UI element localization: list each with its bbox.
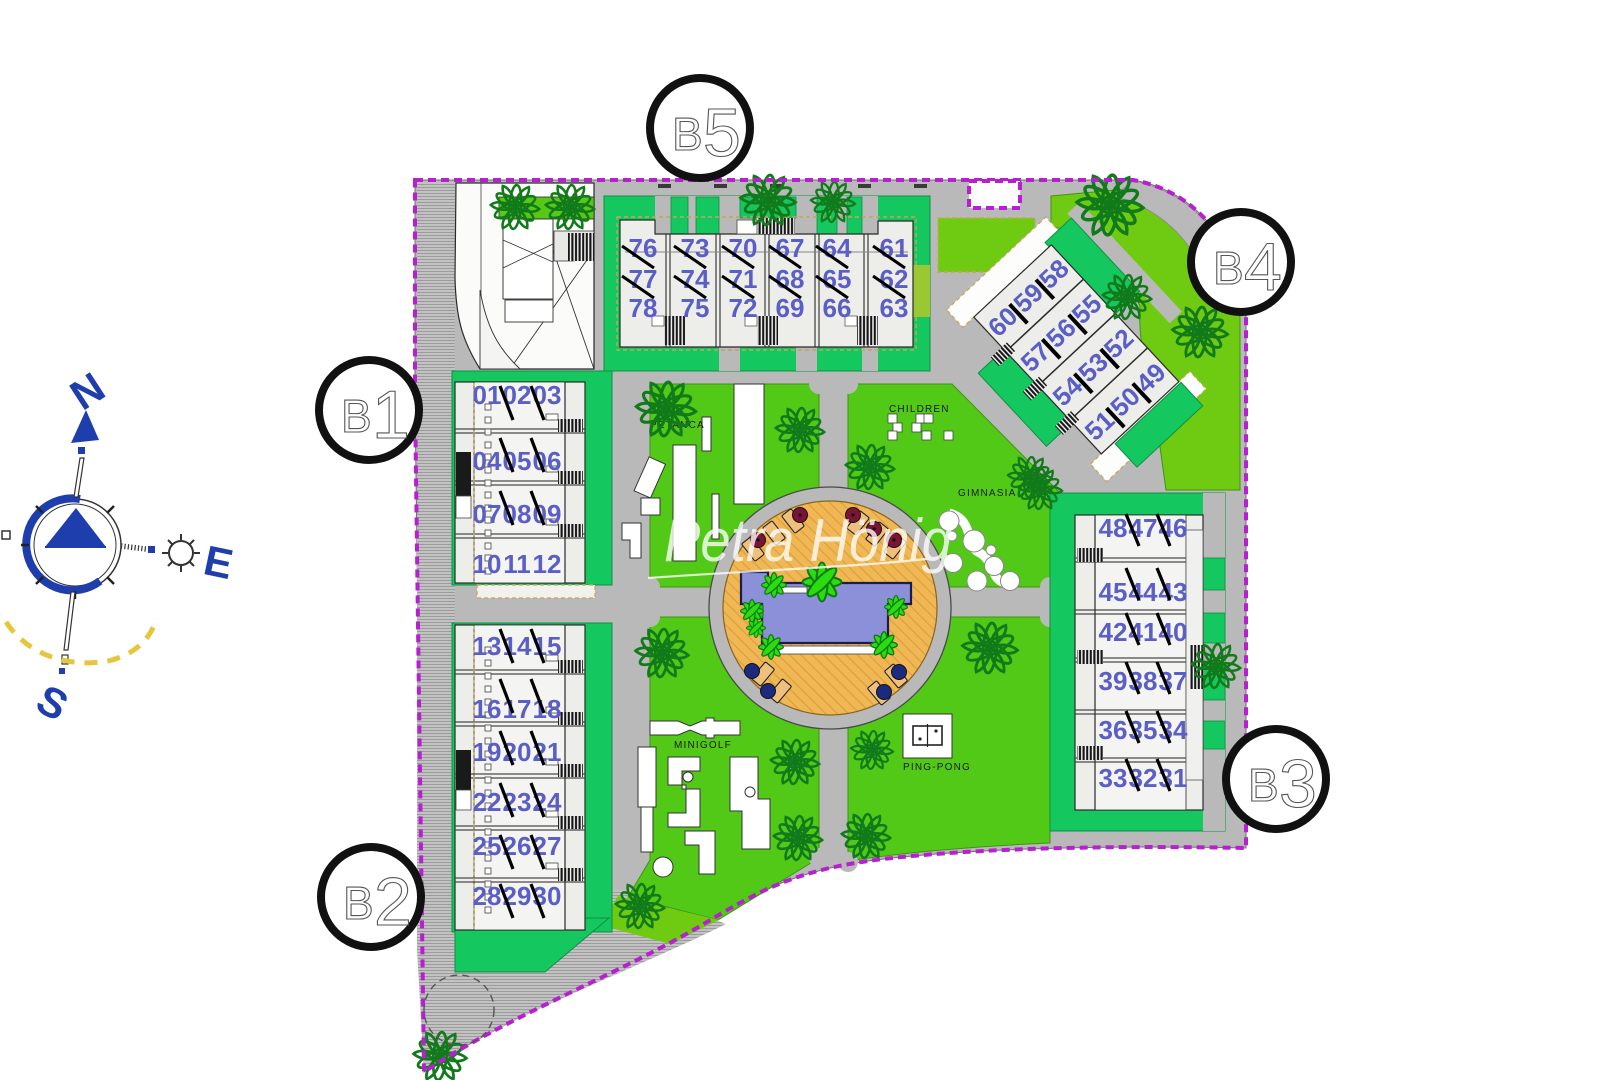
svg-text:64: 64 bbox=[823, 233, 852, 263]
svg-text:01: 01 bbox=[473, 380, 502, 410]
svg-text:76: 76 bbox=[629, 233, 658, 263]
svg-text:GIMNASIA: GIMNASIA bbox=[958, 488, 1017, 499]
svg-text:34: 34 bbox=[1159, 715, 1188, 745]
svg-text:31: 31 bbox=[1159, 763, 1188, 793]
svg-text:MINIGOLF: MINIGOLF bbox=[674, 740, 732, 751]
svg-text:73: 73 bbox=[681, 233, 710, 263]
svg-text:08: 08 bbox=[503, 499, 532, 529]
svg-text:07: 07 bbox=[473, 499, 502, 529]
svg-text:33: 33 bbox=[1099, 763, 1128, 793]
svg-text:19: 19 bbox=[473, 737, 502, 767]
svg-text:PING-PONG: PING-PONG bbox=[903, 762, 971, 773]
svg-text:61: 61 bbox=[880, 233, 909, 263]
svg-text:B: B bbox=[1213, 242, 1244, 294]
svg-text:28: 28 bbox=[473, 881, 502, 911]
svg-text:13: 13 bbox=[473, 631, 502, 661]
svg-text:05: 05 bbox=[503, 446, 532, 476]
svg-text:B: B bbox=[672, 108, 703, 160]
svg-text:21: 21 bbox=[533, 737, 562, 767]
svg-text:36: 36 bbox=[1099, 715, 1128, 745]
svg-text:B: B bbox=[1248, 759, 1279, 811]
svg-text:Petra Hönig: Petra Hönig bbox=[664, 507, 952, 574]
svg-text:16: 16 bbox=[473, 694, 502, 724]
svg-text:25: 25 bbox=[473, 831, 502, 861]
svg-text:42: 42 bbox=[1099, 617, 1128, 647]
svg-text:48: 48 bbox=[1099, 513, 1128, 543]
svg-text:39: 39 bbox=[1099, 666, 1128, 696]
svg-text:5: 5 bbox=[703, 95, 741, 171]
svg-text:04: 04 bbox=[473, 446, 502, 476]
svg-text:37: 37 bbox=[1159, 666, 1188, 696]
svg-text:22: 22 bbox=[473, 787, 502, 817]
svg-text:70: 70 bbox=[729, 233, 758, 263]
svg-text:12: 12 bbox=[533, 549, 562, 579]
svg-text:11: 11 bbox=[503, 549, 531, 579]
svg-text:1: 1 bbox=[372, 377, 410, 453]
svg-text:3: 3 bbox=[1279, 746, 1317, 822]
svg-text:2: 2 bbox=[374, 864, 412, 940]
svg-text:45: 45 bbox=[1099, 577, 1128, 607]
svg-text:40: 40 bbox=[1159, 617, 1188, 647]
svg-text:29: 29 bbox=[503, 881, 532, 911]
svg-text:10: 10 bbox=[473, 549, 502, 579]
svg-text:67: 67 bbox=[776, 233, 805, 263]
svg-text:B: B bbox=[341, 390, 372, 442]
svg-text:B: B bbox=[343, 877, 374, 929]
svg-text:CHILDREN: CHILDREN bbox=[889, 404, 950, 415]
svg-text:4: 4 bbox=[1244, 229, 1282, 305]
